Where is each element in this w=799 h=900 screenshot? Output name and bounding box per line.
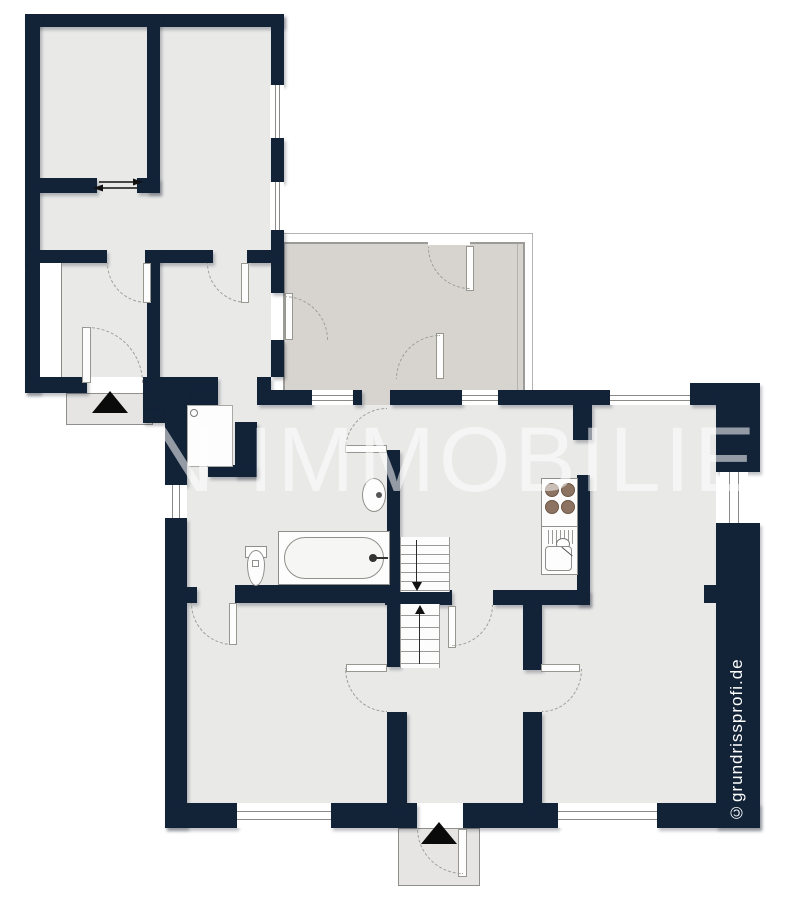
wall bbox=[523, 712, 542, 803]
wall bbox=[498, 390, 610, 405]
stairs-arrow-up-icon bbox=[415, 605, 425, 614]
passage-floor-annex bbox=[362, 390, 390, 405]
wall bbox=[187, 587, 197, 603]
wall bbox=[25, 377, 87, 393]
door-opening bbox=[428, 240, 470, 245]
wall bbox=[257, 390, 312, 405]
wall bbox=[25, 14, 40, 393]
wall bbox=[573, 405, 592, 440]
window bbox=[462, 390, 498, 405]
wall bbox=[271, 230, 284, 293]
wall bbox=[331, 803, 417, 828]
wall bbox=[165, 390, 187, 485]
tub-faucet-spout bbox=[376, 557, 388, 559]
wall bbox=[387, 712, 407, 803]
wash-basin bbox=[362, 478, 386, 512]
stove-burner-icon bbox=[545, 483, 559, 497]
passage-floor-west bbox=[218, 377, 257, 405]
wall bbox=[153, 377, 218, 390]
window bbox=[270, 85, 284, 138]
stairs-arrow-line bbox=[416, 540, 417, 584]
wall bbox=[385, 590, 452, 605]
wall bbox=[390, 390, 462, 405]
window bbox=[558, 803, 657, 828]
annex-outer-line-right bbox=[532, 233, 533, 393]
window bbox=[237, 803, 331, 828]
wall bbox=[147, 14, 160, 193]
wall bbox=[271, 14, 284, 85]
wall bbox=[463, 803, 558, 828]
counter-divider bbox=[541, 526, 578, 527]
entrance-arrow bbox=[421, 822, 457, 844]
floor-plan: N IMMOBILIEN ©grundrissprofi.de bbox=[0, 0, 799, 900]
wall bbox=[235, 585, 397, 603]
wall bbox=[577, 475, 590, 605]
window-niche bbox=[40, 263, 62, 377]
basin-faucet-icon bbox=[376, 492, 382, 498]
wall bbox=[387, 605, 400, 667]
wall bbox=[523, 605, 542, 670]
annex-outer-line-top bbox=[283, 233, 533, 234]
wall bbox=[716, 383, 760, 472]
stove-burner-icon bbox=[561, 500, 575, 514]
boiler-circle-icon bbox=[190, 409, 198, 417]
stove-burner-icon bbox=[561, 483, 575, 497]
stairs-flight-down bbox=[400, 537, 450, 592]
window bbox=[720, 472, 748, 523]
wall bbox=[353, 390, 362, 405]
copyright-text: ©grundrissprofi.de bbox=[727, 652, 747, 822]
wall bbox=[257, 377, 271, 390]
wall bbox=[25, 250, 107, 263]
sliding-door-arrow bbox=[93, 176, 143, 194]
wall bbox=[165, 803, 237, 828]
kitchen-sink bbox=[545, 546, 572, 571]
stairs-arrow-down-icon bbox=[412, 582, 422, 591]
entrance-arrow bbox=[92, 391, 128, 413]
toilet-flush-icon bbox=[252, 560, 259, 567]
window bbox=[165, 485, 187, 518]
wall bbox=[271, 138, 284, 182]
wall bbox=[165, 518, 187, 828]
stairs-arrow-line bbox=[419, 612, 420, 664]
annex-inner-line bbox=[517, 244, 518, 391]
window bbox=[312, 390, 353, 405]
stove-burner-icon bbox=[545, 500, 559, 514]
wall bbox=[493, 590, 590, 605]
wall bbox=[271, 340, 284, 377]
wall bbox=[38, 178, 97, 193]
wall-pillar bbox=[704, 585, 718, 603]
wall bbox=[247, 250, 271, 263]
window bbox=[270, 182, 284, 230]
